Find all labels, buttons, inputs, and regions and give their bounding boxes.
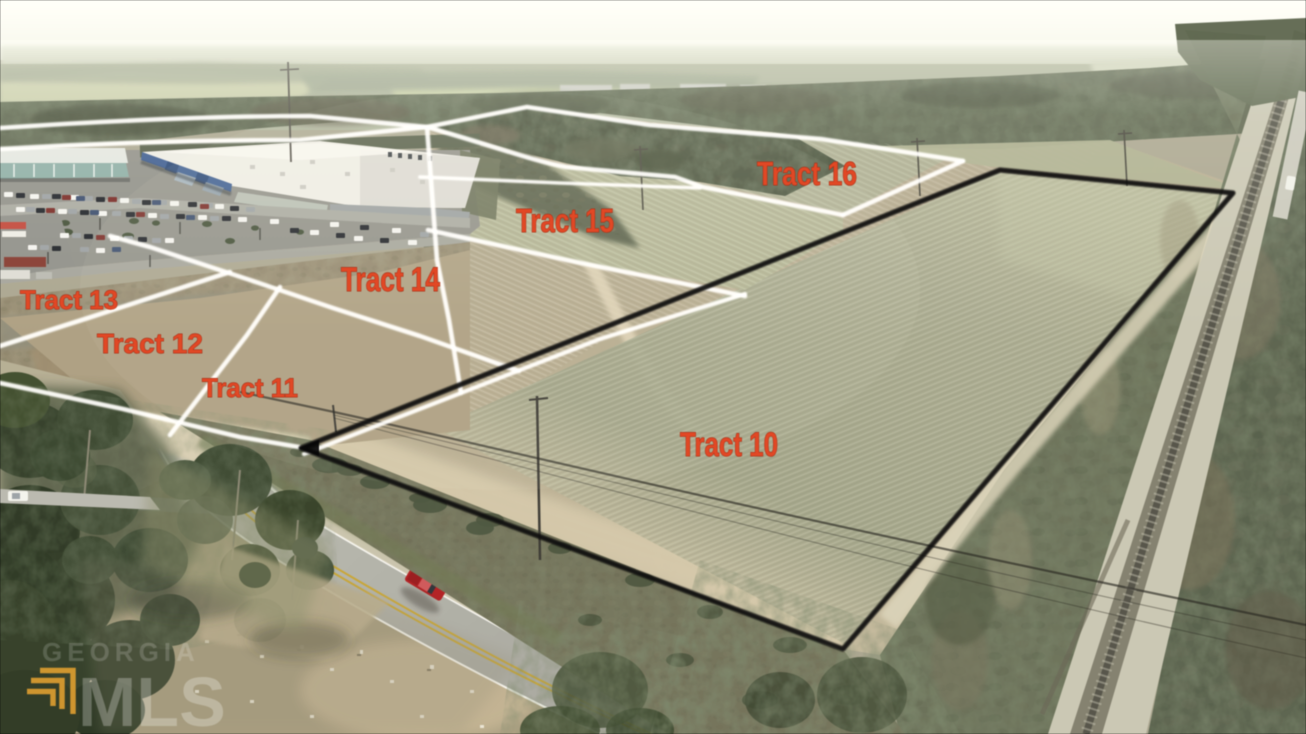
svg-text:Tract 15: Tract 15 [516, 202, 614, 239]
svg-text:Tract 12: Tract 12 [97, 328, 203, 359]
svg-text:Tract 16: Tract 16 [757, 155, 857, 192]
svg-text:MLS: MLS [78, 663, 226, 734]
svg-text:Tract 13: Tract 13 [20, 285, 118, 315]
svg-text:Tract 14: Tract 14 [341, 261, 440, 299]
svg-text:Tract 10: Tract 10 [680, 426, 778, 464]
svg-text:Tract 11: Tract 11 [202, 373, 298, 403]
